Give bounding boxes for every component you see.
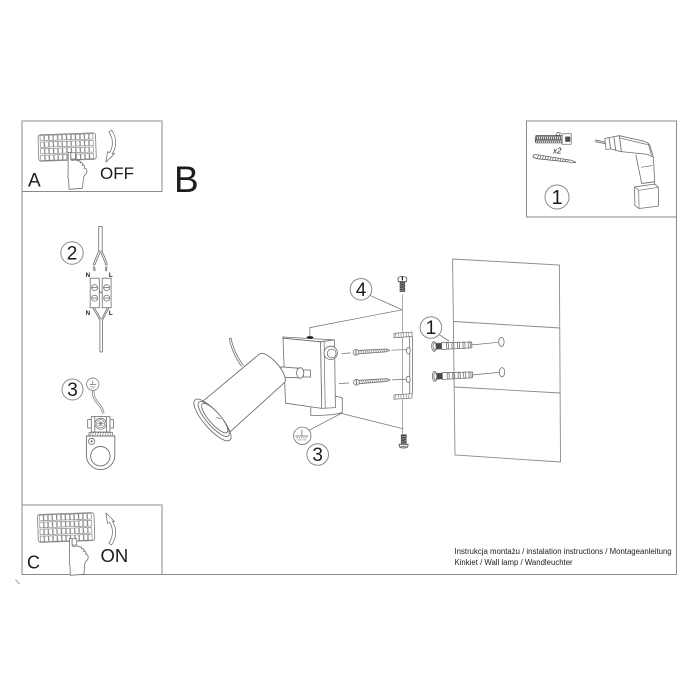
svg-text:L: L bbox=[109, 272, 113, 279]
svg-text:3: 3 bbox=[312, 445, 323, 466]
svg-text:1: 1 bbox=[551, 187, 562, 209]
svg-text:3: 3 bbox=[67, 380, 78, 401]
svg-text:OFF: OFF bbox=[100, 164, 134, 183]
svg-text:N: N bbox=[86, 272, 91, 279]
svg-text:L: L bbox=[109, 310, 113, 317]
svg-text:Instrukcja montażu / instalati: Instrukcja montażu / instalation instruc… bbox=[455, 547, 672, 556]
svg-text:x2: x2 bbox=[552, 147, 562, 156]
svg-text:2: 2 bbox=[67, 244, 78, 265]
svg-text:4: 4 bbox=[356, 280, 367, 301]
svg-text:B: B bbox=[174, 159, 199, 200]
svg-text:N: N bbox=[86, 310, 91, 317]
svg-text:A: A bbox=[28, 171, 41, 192]
svg-text:ON: ON bbox=[101, 545, 129, 566]
svg-text:Kinkiet / Wall lamp / Wandleuc: Kinkiet / Wall lamp / Wandleuchter bbox=[455, 558, 574, 567]
svg-text:C: C bbox=[27, 553, 40, 573]
svg-text:1: 1 bbox=[426, 318, 437, 339]
